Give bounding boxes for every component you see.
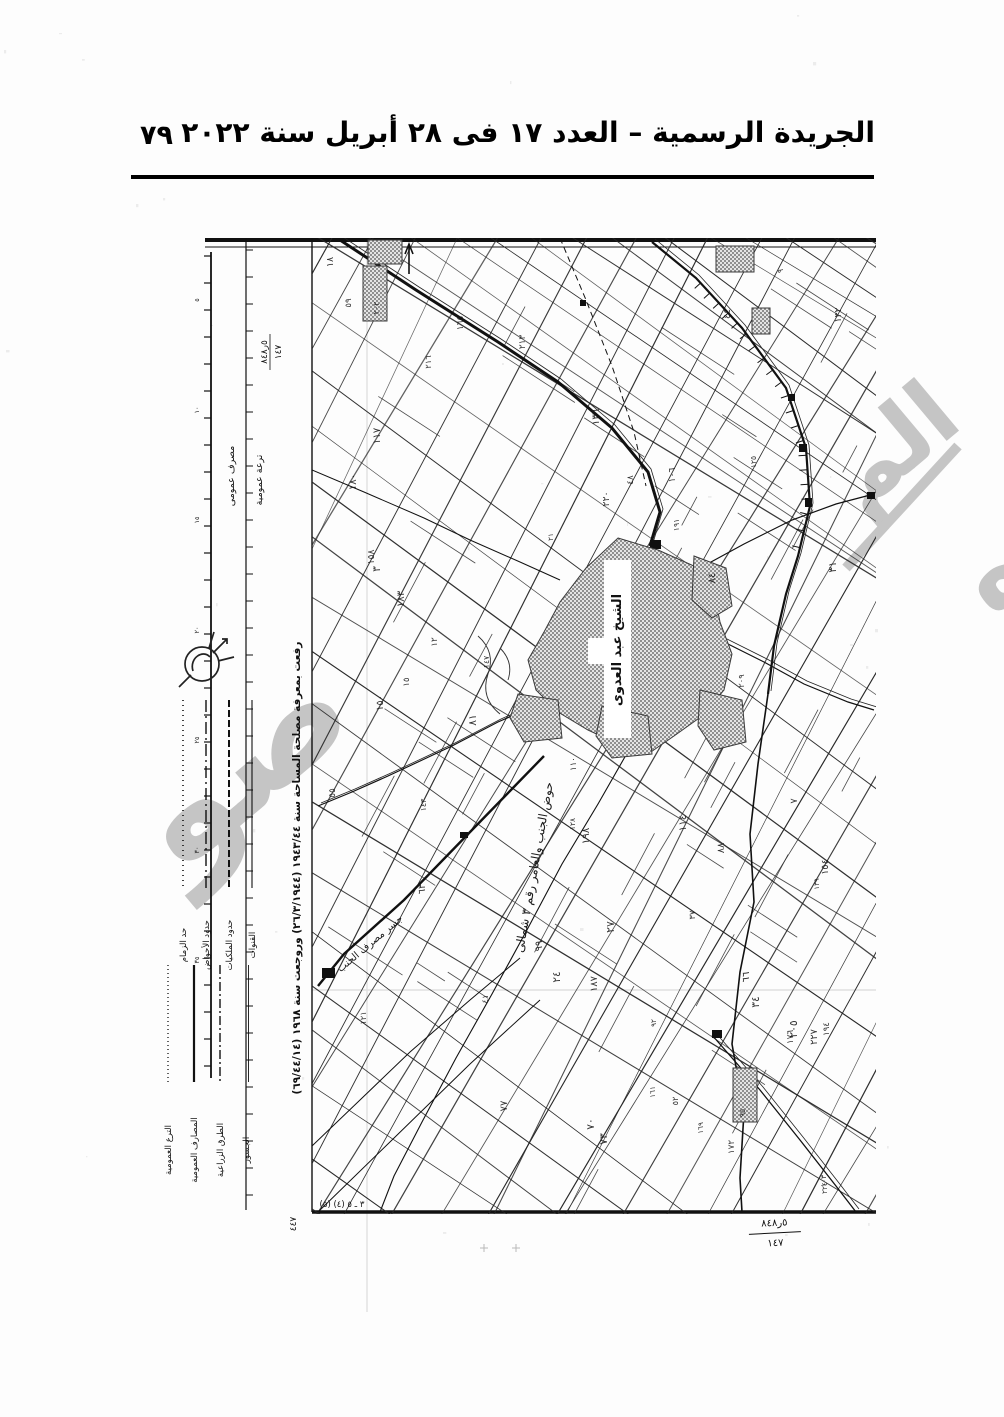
parcel-number: ٩٢ [649, 1019, 658, 1027]
parcel-number: ٧٣ [597, 1133, 610, 1145]
parcel-number: ٣٤ [749, 996, 762, 1007]
parcel-number: ١٨٠ [348, 474, 359, 490]
scale-bottom-numerator: ٥ر٨٤٨ [761, 1217, 788, 1229]
legend-label: المصارف العمومية [190, 1117, 200, 1182]
parcel-number: ٩ [776, 269, 785, 273]
watermark-fragment-bottom: صو [84, 619, 385, 911]
side-number: ٤٤٧ [289, 1217, 299, 1232]
tick-number: ٢٥ [193, 736, 201, 743]
scale-bottom-denominator: ١٤٧ [767, 1238, 784, 1250]
page-number: ٧٩ [140, 120, 173, 151]
scan-blotch [788, 394, 795, 401]
scale-top-denominator: ١٤٧ [274, 345, 284, 360]
plus-mark [512, 1244, 520, 1252]
gazette-title: الجريدة الرسمية – العدد ١٧ فى ٢٨ أبريل س… [225, 116, 875, 162]
parcel-number: ١٧٢ [727, 1140, 737, 1154]
parcel-number: ١٨ [325, 257, 336, 267]
parcel-number: ٦٦ [741, 972, 752, 983]
scan-blotch [322, 968, 335, 978]
parcel-number: ١٣٩ [812, 878, 821, 890]
parcel-number: ١٣٦ [591, 408, 602, 425]
parcel-number: ١١٠ [569, 757, 579, 771]
scale-fraction-top: ٥ر٨٤٨ ١٤٧ [260, 334, 284, 370]
basin-label: حوض الجنب والعامر رقم ٣ شمالى [512, 781, 557, 954]
parcel-number: ١٥ [402, 677, 412, 686]
parcel-number: ١٥٨ [366, 550, 377, 565]
parcel-number: ٧ [789, 798, 800, 804]
parcel-number: ١٩٤ [822, 1022, 832, 1036]
tick-number: ٣٥ [193, 956, 201, 963]
tick-number: ١٥ [193, 516, 201, 523]
legend-label: الجسور [242, 1137, 252, 1165]
parcel-number: ١٤٣ [419, 798, 428, 811]
legend-label: حدود الملكيات [225, 920, 235, 971]
scan-blotch [460, 832, 468, 838]
parcel-number: ١٢٨ [568, 818, 577, 830]
scan-blotch [805, 498, 812, 507]
legend-label: القنوات [248, 932, 258, 959]
hatch-patch [510, 694, 562, 742]
parcel-number: ٥٩ [344, 298, 354, 308]
tick-number: ٥ [193, 298, 201, 302]
parcel-number: ١٣٢ [833, 307, 844, 322]
parcel-number: ٢٠٢ [372, 302, 381, 315]
edge-note: رفعت بمعرفة مصلحة المساحة سنة ١٩٤٣/٤٤ (٢… [291, 642, 303, 1095]
parcel-number: ١٤٧ [482, 656, 491, 668]
parcel-number: ٣ [370, 566, 383, 572]
frame-label-canal: ترعة عمومية [254, 454, 265, 505]
scan-blotch [712, 1030, 722, 1038]
legend-label: حد الزمام [179, 928, 189, 962]
parcel-number: ٢١ [546, 533, 555, 541]
header-rule [131, 175, 874, 179]
parcel-number: ٨٨ [716, 842, 727, 853]
road-label: جسر مصرف الجنب [335, 914, 405, 975]
parcel-number: ١٦١ [648, 1086, 657, 1098]
legend-label: حدود الأحواض [201, 920, 212, 970]
parcel-number: ١٢١ [358, 1011, 368, 1024]
parcel-number: ٣١ [827, 561, 839, 572]
parcel-number: ٤٨ [626, 475, 636, 485]
parcel-number: ١٥٤ [820, 859, 831, 874]
frame-label-drain: مصرف عمومى [226, 446, 237, 507]
parcel-number: ٢١٣ [518, 335, 528, 350]
parcel-number: ٧٠ [585, 1118, 597, 1129]
parcel-number: ٢١٦ [423, 355, 433, 369]
parcel-number: ٥٥ [328, 788, 338, 798]
cadastral-map: الم صوره صو ٥١٠١٥٢٠٢٥٣٠٣٥ ا [0, 0, 1004, 1417]
parcel-number: ١٦٥ [456, 316, 466, 331]
parcel-number: ١٦٩ [696, 1122, 705, 1134]
parcel-number: ٣٧ [687, 910, 697, 919]
scan-blotch [867, 492, 875, 499]
parcel-number: ٢٧ [604, 921, 617, 933]
village-label-notch [588, 638, 604, 664]
parcel-number: ١٠٦ [667, 468, 678, 483]
parcel-number: ٤٤ [722, 309, 733, 319]
legend-label: الطرق الزراعية [216, 1123, 226, 1177]
parcel-number: ٧٧ [499, 1100, 510, 1111]
north-arrow [405, 244, 413, 274]
hatch-patch [698, 690, 746, 750]
parcel-number: ٢٠٩ [736, 674, 746, 688]
plus-mark [480, 1244, 488, 1252]
parcel-number: ٨١ [466, 714, 479, 726]
gazette-page: { "header": { "title": "الجريدة الرسمية … [0, 0, 1004, 1417]
parcel-number: ١٨٧ [589, 976, 600, 992]
parcel-number: ٢٢٠ [601, 491, 612, 506]
parcel-number: ١٢ [430, 637, 440, 647]
parcel-number: ١٩١ [672, 519, 681, 531]
tick-number: ٣٠ [193, 847, 201, 854]
parcel-number: ١٢٥ [749, 456, 758, 468]
parcel-number: ٦٣ [417, 883, 428, 894]
hatch-patch [368, 240, 402, 264]
village-label: الشيخ عبد العدوى [610, 594, 625, 706]
parcel-number: ٨٤ [707, 573, 718, 584]
parcel-number: ٢٤ [551, 971, 563, 982]
parcel-number: ١٨٣ [396, 590, 407, 607]
parcel-number: ٥٢ [670, 1096, 680, 1105]
parcel-number: ٩٥ [738, 1109, 747, 1117]
tick-number: ١٠ [193, 407, 201, 414]
scan-blotch [799, 444, 807, 452]
parcel-number: ١١٤ [677, 815, 689, 832]
scale-fraction-bottom: ٥ر٨٤٨ ١٤٧ [748, 1217, 802, 1251]
scan-blotch [580, 300, 586, 306]
corner-note: ٣ ـ ٥ (٤) (٥) [320, 1200, 365, 1210]
parcel-number: ٢٢٤ [820, 1182, 829, 1194]
parcel-number: ١٩٨ [580, 827, 592, 844]
legend-label: الترع العمومية [164, 1125, 174, 1175]
scale-top-numerator: ٥ر٨٤٨ [260, 340, 270, 364]
parcel-number: ١٥٠ [375, 695, 386, 711]
parcel-number: ٤١ [480, 995, 490, 1004]
hatch-patch [716, 246, 754, 272]
parcel-number: ١١٧ [371, 427, 383, 444]
parcel-number: ٩٩ [534, 941, 545, 952]
parcel-number: ٢٠٥ [787, 1020, 800, 1038]
parcel-number: ٢٢٧ [809, 1029, 820, 1045]
hatch-patch [752, 308, 770, 334]
tick-number: ٢٠ [193, 627, 201, 634]
scan-speckles [4, 15, 889, 1236]
